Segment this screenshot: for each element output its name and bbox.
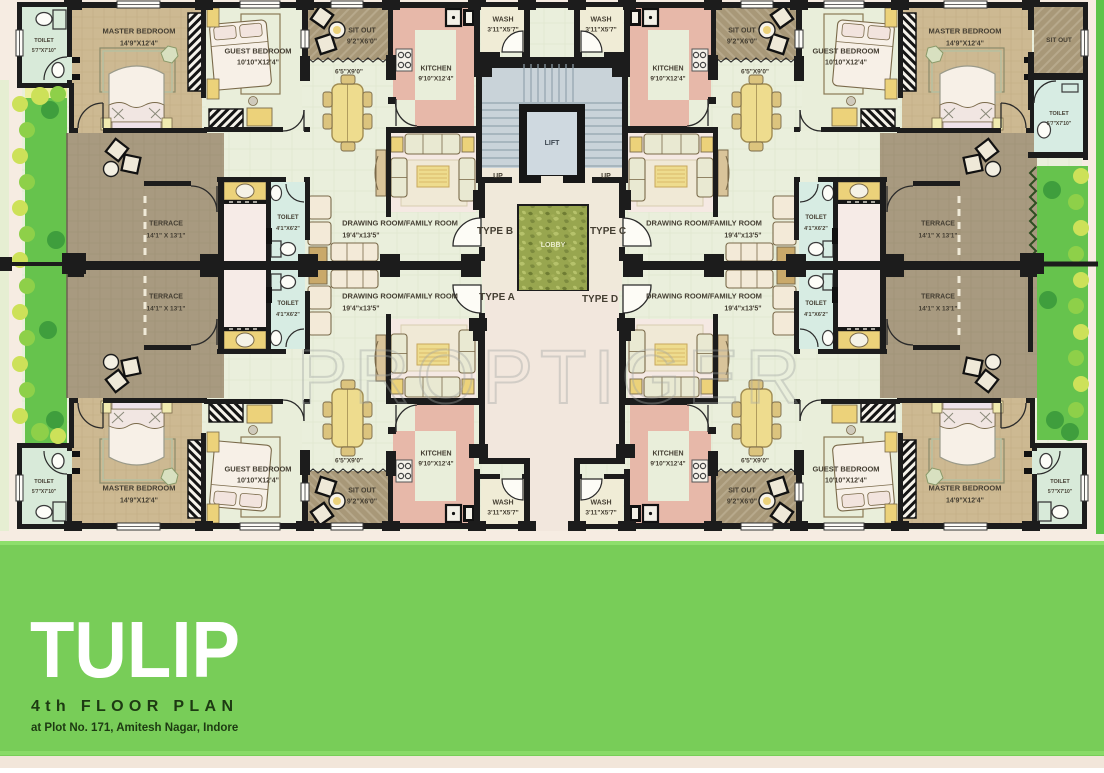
svg-text:GUEST BEDROOM: GUEST BEDROOM [224,465,291,474]
svg-text:10'10"X12'4": 10'10"X12'4" [825,59,867,66]
svg-text:14'1" X 13'1": 14'1" X 13'1" [147,232,186,239]
svg-text:WASH: WASH [493,499,514,506]
svg-text:3'11"X5'7": 3'11"X5'7" [585,509,616,516]
svg-text:9'2"X6'0": 9'2"X6'0" [347,38,377,45]
svg-text:LIFT: LIFT [545,140,560,147]
svg-text:DRAWING ROOM/FAMILY ROOM: DRAWING ROOM/FAMILY ROOM [646,219,762,228]
svg-text:SIT OUT: SIT OUT [348,27,376,34]
svg-text:TERRACE: TERRACE [149,220,183,227]
svg-text:TOILET: TOILET [34,479,54,485]
svg-text:6'5"X9'0": 6'5"X9'0" [335,68,363,75]
svg-text:TYPE C: TYPE C [590,226,626,237]
svg-text:3'11"X5'7": 3'11"X5'7" [487,509,518,516]
svg-text:KITCHEN: KITCHEN [652,450,683,457]
svg-text:WASH: WASH [591,499,612,506]
svg-text:TYPE D: TYPE D [582,294,618,305]
svg-text:TYPE A: TYPE A [479,292,515,303]
svg-text:14'9"X12'4": 14'9"X12'4" [120,40,158,47]
svg-text:MASTER BEDROOM: MASTER BEDROOM [103,27,176,36]
svg-text:SIT OUT: SIT OUT [348,487,376,494]
svg-text:9'2"X6'0": 9'2"X6'0" [727,38,757,45]
svg-text:4'1"X6'2": 4'1"X6'2" [276,226,300,232]
svg-text:SIT OUT: SIT OUT [728,487,756,494]
svg-text:9'2"X6'0": 9'2"X6'0" [727,498,757,505]
svg-text:9'10"X12'4": 9'10"X12'4" [418,75,453,82]
svg-text:TOILET: TOILET [34,38,54,44]
svg-text:DRAWING ROOM/FAMILY ROOM: DRAWING ROOM/FAMILY ROOM [342,219,458,228]
svg-text:MASTER BEDROOM: MASTER BEDROOM [929,484,1002,493]
svg-text:KITCHEN: KITCHEN [420,450,451,457]
svg-text:6'5"X9'0": 6'5"X9'0" [335,457,363,464]
svg-text:GUEST BEDROOM: GUEST BEDROOM [812,47,879,56]
svg-text:10'10"X12'4": 10'10"X12'4" [237,477,279,484]
svg-text:14'1" X 13'1": 14'1" X 13'1" [147,305,186,312]
svg-text:14'1" X 13'1": 14'1" X 13'1" [919,232,958,239]
svg-text:5'7"X7'10": 5'7"X7'10" [32,489,57,495]
svg-text:DRAWING ROOM/FAMILY ROOM: DRAWING ROOM/FAMILY ROOM [342,292,458,301]
svg-text:KITCHEN: KITCHEN [420,65,451,72]
svg-text:9'10"X12'4": 9'10"X12'4" [650,460,685,467]
svg-text:PROPTIGER: PROPTIGER [297,335,808,420]
svg-text:4'1"X6'2": 4'1"X6'2" [804,226,828,232]
svg-text:14'9"X12'4": 14'9"X12'4" [120,497,158,504]
svg-text:6'5"X9'0": 6'5"X9'0" [741,457,769,464]
svg-text:4'1"X6'2": 4'1"X6'2" [804,312,828,318]
svg-text:6'5"X9'0": 6'5"X9'0" [741,68,769,75]
svg-text:3'11"X5'7": 3'11"X5'7" [487,26,518,33]
svg-text:14'9"X12'4": 14'9"X12'4" [946,40,984,47]
svg-text:at Plot No. 171, Amitesh Nagar: at Plot No. 171, Amitesh Nagar, Indore [31,722,238,734]
svg-text:MASTER BEDROOM: MASTER BEDROOM [929,27,1002,36]
svg-text:TERRACE: TERRACE [921,293,955,300]
svg-text:TOILET: TOILET [805,215,827,221]
svg-text:4'1"X6'2": 4'1"X6'2" [276,312,300,318]
svg-text:SIT OUT: SIT OUT [1046,37,1072,44]
svg-text:10'10"X12'4": 10'10"X12'4" [237,59,279,66]
svg-text:WASH: WASH [591,16,612,23]
svg-text:9'2"X6'0": 9'2"X6'0" [347,498,377,505]
svg-text:UP: UP [493,173,503,180]
svg-text:TERRACE: TERRACE [921,220,955,227]
svg-text:GUEST BEDROOM: GUEST BEDROOM [812,465,879,474]
svg-text:SIT OUT: SIT OUT [728,27,756,34]
svg-text:10'10"X12'4": 10'10"X12'4" [825,477,867,484]
svg-text:5'7"X7'10": 5'7"X7'10" [1047,121,1072,127]
svg-text:19'4"x13'5": 19'4"x13'5" [724,232,761,239]
svg-text:WASH: WASH [493,16,514,23]
svg-text:TOILET: TOILET [1050,479,1070,485]
svg-text:19'4"x13'5": 19'4"x13'5" [342,305,379,312]
svg-text:14'1" X 13'1": 14'1" X 13'1" [919,305,958,312]
svg-text:19'4"x13'5": 19'4"x13'5" [724,305,761,312]
svg-text:5'7"X7'10": 5'7"X7'10" [1048,489,1073,495]
svg-text:TYPE B: TYPE B [477,226,513,237]
svg-text:3'11"X5'7": 3'11"X5'7" [585,26,616,33]
svg-text:TOILET: TOILET [1049,111,1069,117]
svg-text:TOILET: TOILET [277,301,299,307]
svg-text:MASTER BEDROOM: MASTER BEDROOM [103,484,176,493]
svg-text:TOILET: TOILET [805,301,827,307]
svg-text:14'9"X12'4": 14'9"X12'4" [946,497,984,504]
svg-text:5'7"X7'10": 5'7"X7'10" [32,48,57,54]
svg-text:GUEST BEDROOM: GUEST BEDROOM [224,47,291,56]
svg-text:TOILET: TOILET [277,215,299,221]
svg-text:TULIP: TULIP [30,605,240,694]
svg-text:19'4"x13'5": 19'4"x13'5" [342,232,379,239]
svg-text:DRAWING ROOM/FAMILY ROOM: DRAWING ROOM/FAMILY ROOM [646,292,762,301]
svg-text:9'10"X12'4": 9'10"X12'4" [650,75,685,82]
svg-text:LOBBY: LOBBY [541,242,566,249]
svg-text:KITCHEN: KITCHEN [652,65,683,72]
svg-text:UP: UP [601,173,611,180]
svg-text:TERRACE: TERRACE [149,293,183,300]
svg-text:9'10"X12'4": 9'10"X12'4" [418,460,453,467]
